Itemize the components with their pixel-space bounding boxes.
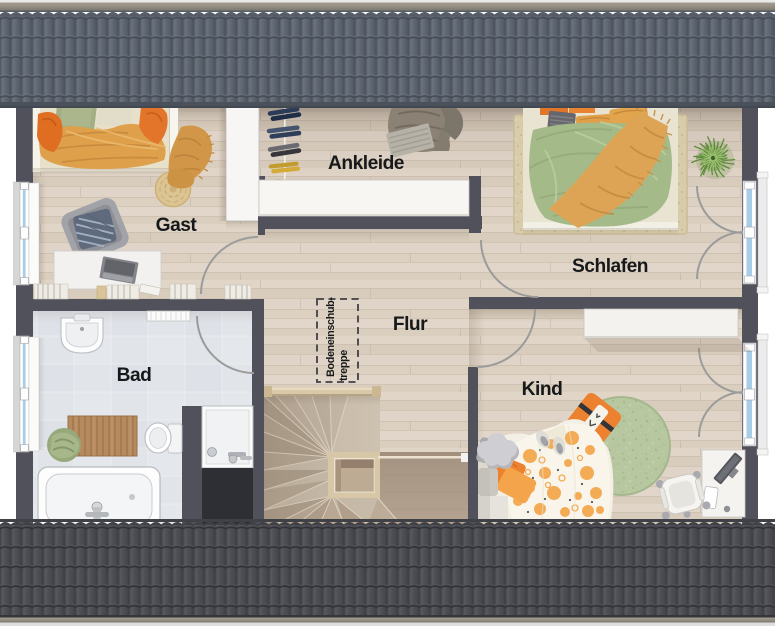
svg-text:treppe: treppe (338, 350, 350, 381)
svg-text:Ankleide: Ankleide (328, 153, 405, 174)
svg-text:Bad: Bad (117, 365, 152, 386)
svg-text:Bodeneinschub-: Bodeneinschub- (325, 297, 337, 377)
svg-text:Kind: Kind (522, 379, 563, 400)
svg-text:Gast: Gast (156, 215, 198, 236)
svg-text:Flur: Flur (393, 314, 428, 335)
svg-text:Schlafen: Schlafen (572, 256, 648, 277)
